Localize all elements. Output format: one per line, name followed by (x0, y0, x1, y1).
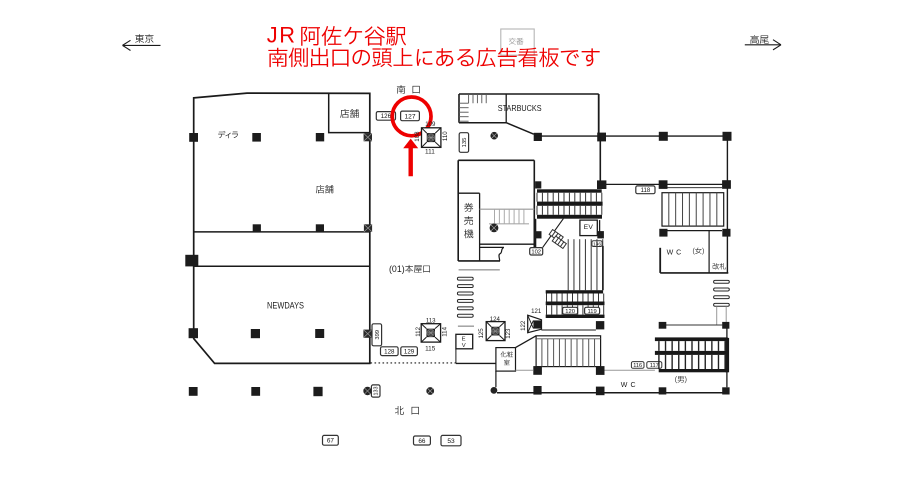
svg-text:E: E (462, 337, 466, 343)
svg-text:W C: W C (667, 250, 682, 257)
svg-text:133: 133 (374, 387, 380, 396)
svg-text:(01): (01) (389, 264, 405, 274)
svg-text:119: 119 (587, 309, 596, 315)
svg-text:128: 128 (384, 348, 395, 355)
svg-text:66: 66 (418, 438, 426, 445)
svg-text:123: 123 (505, 328, 512, 339)
svg-text:STARBUCKS: STARBUCKS (498, 104, 542, 113)
svg-text:399: 399 (375, 330, 381, 340)
svg-text:113: 113 (426, 317, 436, 324)
svg-text:135: 135 (462, 138, 468, 148)
svg-text:EV: EV (584, 224, 594, 231)
svg-text:115: 115 (425, 346, 436, 353)
svg-text:JR: JR (267, 23, 297, 48)
svg-text:67: 67 (327, 438, 335, 445)
svg-text:122: 122 (520, 320, 527, 331)
svg-text:129: 129 (404, 348, 415, 355)
svg-text:102: 102 (531, 249, 541, 255)
svg-text:125: 125 (478, 328, 485, 339)
svg-text:114: 114 (441, 326, 448, 336)
svg-text:121: 121 (531, 308, 542, 315)
svg-text:116: 116 (633, 363, 642, 369)
svg-text:109: 109 (425, 121, 436, 128)
svg-text:V: V (462, 343, 466, 349)
svg-text:W C: W C (621, 382, 636, 389)
svg-text:124: 124 (490, 316, 501, 323)
svg-text:53: 53 (447, 438, 455, 445)
svg-text:112: 112 (415, 326, 422, 336)
svg-text:110: 110 (442, 131, 449, 141)
svg-text:120: 120 (565, 309, 575, 315)
svg-text:126: 126 (381, 113, 392, 120)
svg-text:108: 108 (414, 131, 421, 142)
svg-text:117: 117 (650, 363, 659, 369)
svg-text:127: 127 (404, 113, 415, 120)
svg-text:NEWDAYS: NEWDAYS (267, 301, 304, 311)
svg-text:118: 118 (641, 188, 651, 194)
svg-text:111: 111 (425, 149, 435, 156)
